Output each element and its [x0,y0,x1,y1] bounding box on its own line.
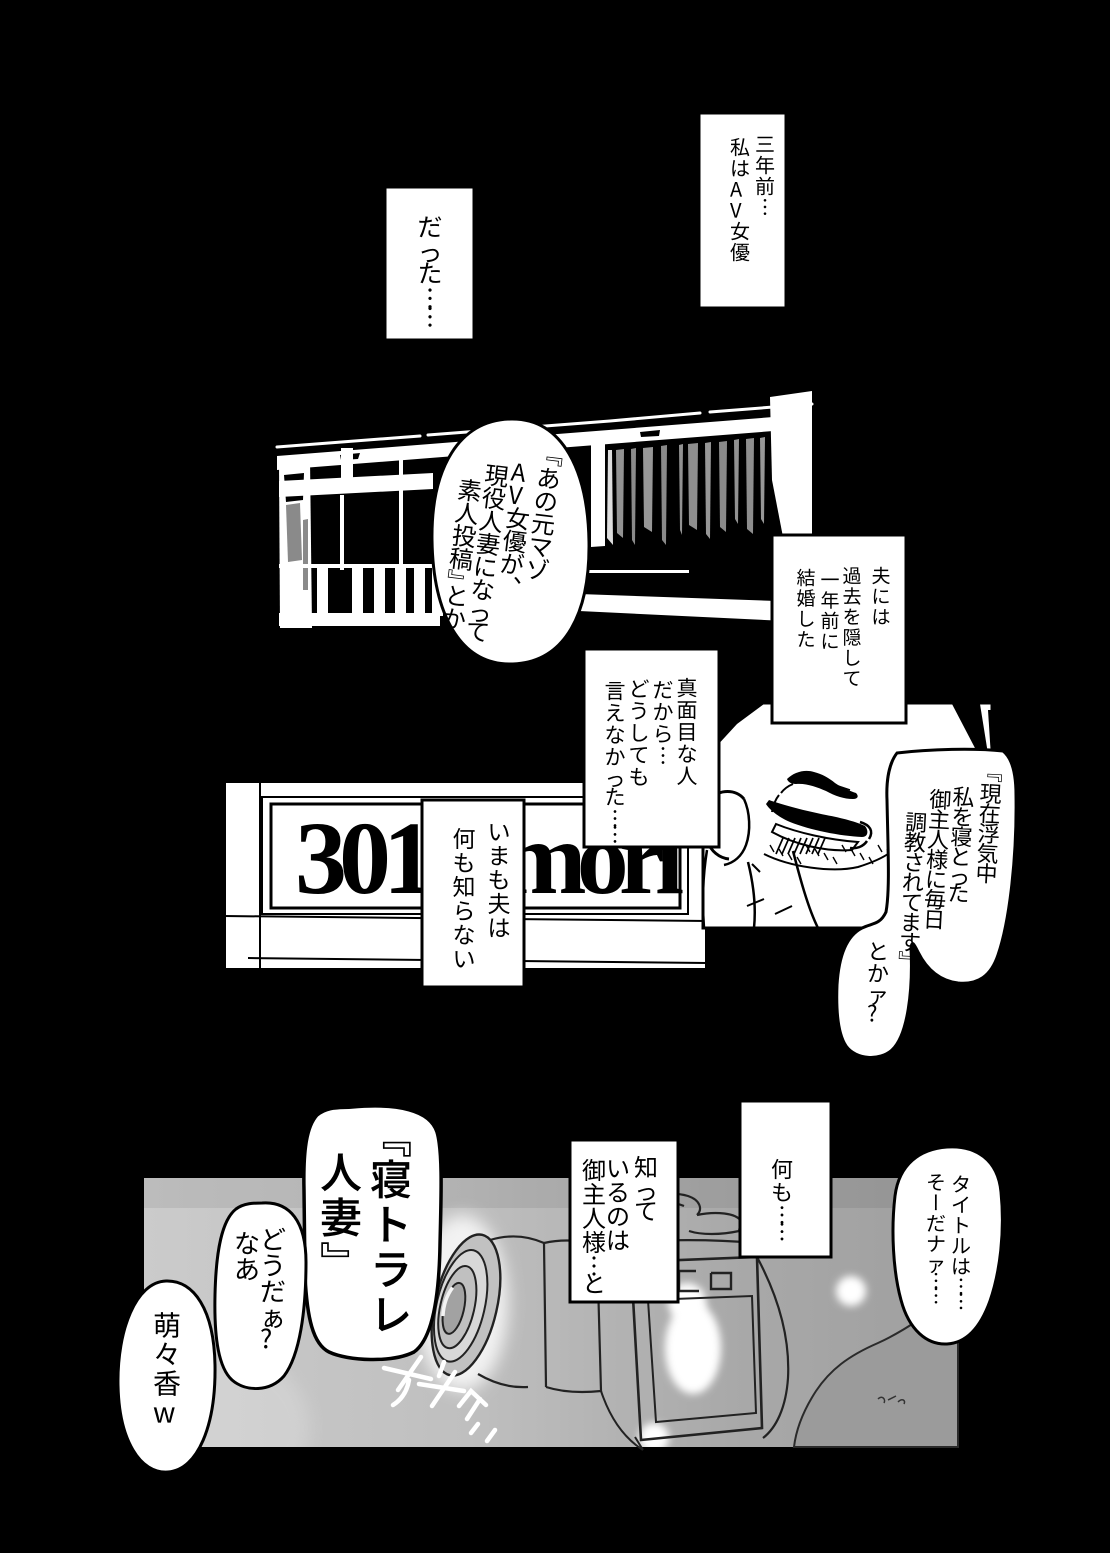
svg-text:301: 301 [295,801,435,916]
